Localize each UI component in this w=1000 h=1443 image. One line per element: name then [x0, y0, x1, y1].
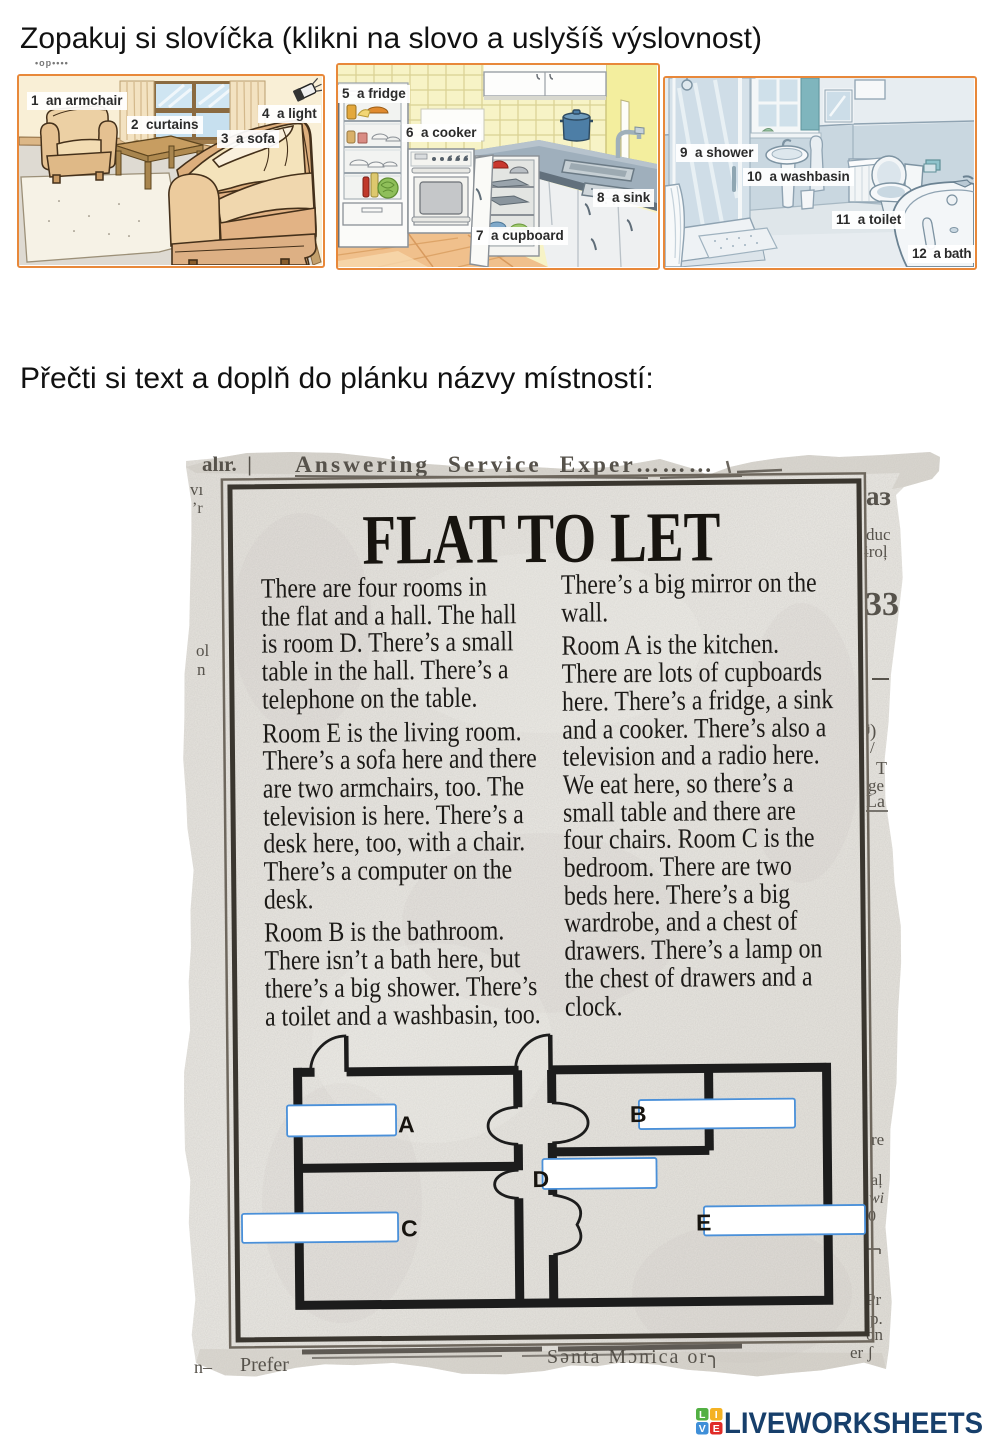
svg-text:A: A — [398, 1111, 415, 1137]
svg-text:E: E — [696, 1209, 712, 1235]
svg-text:alır. |: alır. | — [202, 452, 252, 476]
svg-text:I: I — [715, 1409, 718, 1421]
svg-text:C: C — [401, 1215, 418, 1241]
svg-text:FLAT TO LET: FLAT TO LET — [362, 498, 721, 579]
svg-text:B: B — [630, 1101, 647, 1127]
svg-text:D: D — [532, 1166, 549, 1192]
svg-text:re: re — [871, 1130, 884, 1149]
svg-text:Prefer: Prefer — [240, 1354, 289, 1376]
svg-text:n–: n– — [194, 1357, 213, 1377]
svg-text:vı: vı — [190, 480, 204, 499]
svg-text:V: V — [699, 1423, 706, 1435]
svg-text:LIVEWORKSHEETS: LIVEWORKSHEETS — [724, 1407, 983, 1437]
svg-text:’r: ’r — [192, 500, 203, 517]
svg-text:Answering Service Exper………: Answering Service Exper……… — [295, 452, 715, 477]
svg-text:E: E — [713, 1423, 720, 1435]
svg-text:er ʃ: er ʃ — [850, 1343, 873, 1362]
svg-text:ɨroļ: ɨroļ — [864, 542, 888, 561]
svg-text:aɜ: aɜ — [866, 481, 891, 511]
svg-text:L: L — [699, 1409, 706, 1421]
svg-text:n: n — [197, 660, 206, 679]
svg-text:ol: ol — [196, 641, 210, 660]
